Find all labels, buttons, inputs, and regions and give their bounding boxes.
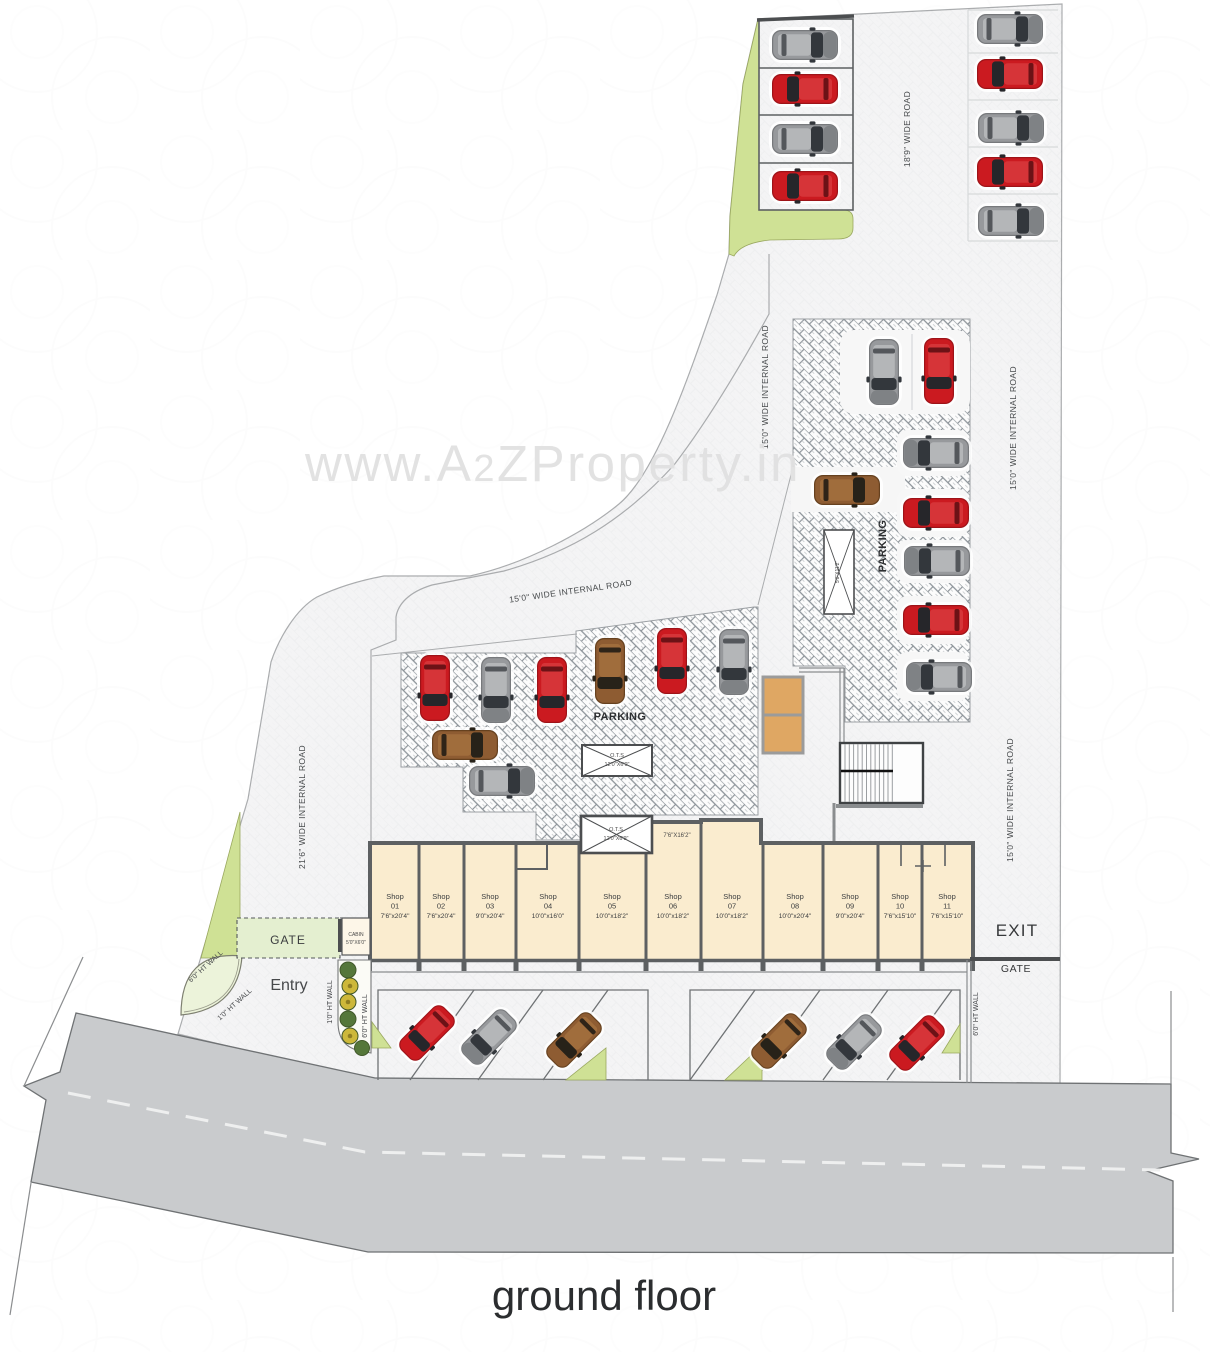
svg-text:15'0" WIDE INTERNAL ROAD: 15'0" WIDE INTERNAL ROAD bbox=[1008, 366, 1018, 490]
svg-text:02: 02 bbox=[437, 902, 445, 911]
svg-text:Shop: Shop bbox=[481, 892, 499, 901]
svg-text:Shop: Shop bbox=[938, 892, 956, 901]
svg-text:6'0" HT WALL: 6'0" HT WALL bbox=[362, 994, 369, 1038]
svg-text:03: 03 bbox=[486, 902, 494, 911]
svg-text:10'0"x20'4": 10'0"x20'4" bbox=[779, 913, 812, 920]
svg-text:7'6"x15'10": 7'6"x15'10" bbox=[931, 913, 964, 920]
svg-text:06: 06 bbox=[669, 902, 677, 911]
svg-text:01: 01 bbox=[391, 902, 399, 911]
svg-text:10'0"x16'0": 10'0"x16'0" bbox=[532, 913, 565, 920]
svg-text:7'6"x20'4": 7'6"x20'4" bbox=[381, 913, 410, 920]
svg-text:05: 05 bbox=[608, 902, 616, 911]
svg-text:Shop: Shop bbox=[786, 892, 804, 901]
svg-text:7'6"X16'2": 7'6"X16'2" bbox=[663, 833, 690, 839]
svg-text:GATE: GATE bbox=[1001, 963, 1031, 975]
svg-text:Shop: Shop bbox=[841, 892, 859, 901]
svg-text:Shop: Shop bbox=[539, 892, 557, 901]
svg-text:Shop: Shop bbox=[723, 892, 741, 901]
svg-text:15'0" WIDE INTERNAL ROAD: 15'0" WIDE INTERNAL ROAD bbox=[1005, 738, 1015, 862]
svg-text:09: 09 bbox=[846, 902, 854, 911]
svg-text:9'0"x20'4": 9'0"x20'4" bbox=[476, 913, 505, 920]
svg-text:1'0" HT WALL: 1'0" HT WALL bbox=[327, 980, 334, 1024]
svg-text:PARKING: PARKING bbox=[594, 711, 647, 723]
svg-text:04: 04 bbox=[544, 902, 552, 911]
svg-text:15'0" WIDE INTERNAL ROAD: 15'0" WIDE INTERNAL ROAD bbox=[760, 325, 770, 449]
svg-text:5'8"X11'2": 5'8"X11'2" bbox=[835, 561, 841, 584]
svg-text:6'0" HT WALL: 6'0" HT WALL bbox=[973, 992, 980, 1036]
svg-text:CABIN: CABIN bbox=[348, 932, 364, 938]
svg-text:12'0"X6'9": 12'0"X6'9" bbox=[604, 836, 629, 842]
svg-text:Shop: Shop bbox=[891, 892, 909, 901]
svg-text:Shop: Shop bbox=[603, 892, 621, 901]
svg-text:10'0"x18'2": 10'0"x18'2" bbox=[596, 913, 629, 920]
svg-text:08: 08 bbox=[791, 902, 799, 911]
svg-text:07: 07 bbox=[728, 902, 736, 911]
svg-text:PARKING: PARKING bbox=[877, 520, 889, 573]
svg-text:Entry: Entry bbox=[270, 977, 307, 994]
svg-text:EXIT: EXIT bbox=[996, 921, 1039, 940]
svg-text:10: 10 bbox=[896, 902, 904, 911]
svg-text:www.A2ZProperty.in: www.A2ZProperty.in bbox=[304, 435, 801, 492]
svg-text:O.T.S: O.T.S bbox=[609, 827, 623, 833]
svg-text:7'6"x20'4": 7'6"x20'4" bbox=[427, 913, 456, 920]
svg-text:12'0"X6'9": 12'0"X6'9" bbox=[605, 762, 630, 768]
svg-text:O.T.S: O.T.S bbox=[610, 753, 624, 759]
svg-text:11: 11 bbox=[943, 902, 951, 911]
svg-text:Shop: Shop bbox=[664, 892, 682, 901]
svg-text:10'0"x18'2": 10'0"x18'2" bbox=[657, 913, 690, 920]
svg-text:Shop: Shop bbox=[432, 892, 450, 901]
svg-text:21'6" WIDE INTERNAL ROAD: 21'6" WIDE INTERNAL ROAD bbox=[297, 745, 307, 869]
svg-text:GATE: GATE bbox=[270, 933, 306, 947]
svg-text:7'6"x15'10": 7'6"x15'10" bbox=[884, 913, 917, 920]
svg-text:9'0"x20'4": 9'0"x20'4" bbox=[836, 913, 865, 920]
svg-text:5'0"X6'0": 5'0"X6'0" bbox=[346, 940, 366, 946]
svg-text:ground floor: ground floor bbox=[492, 1272, 716, 1319]
svg-text:18'9" WIDE ROAD: 18'9" WIDE ROAD bbox=[902, 91, 912, 167]
svg-text:10'0"x18'2": 10'0"x18'2" bbox=[716, 913, 749, 920]
svg-text:Shop: Shop bbox=[386, 892, 404, 901]
